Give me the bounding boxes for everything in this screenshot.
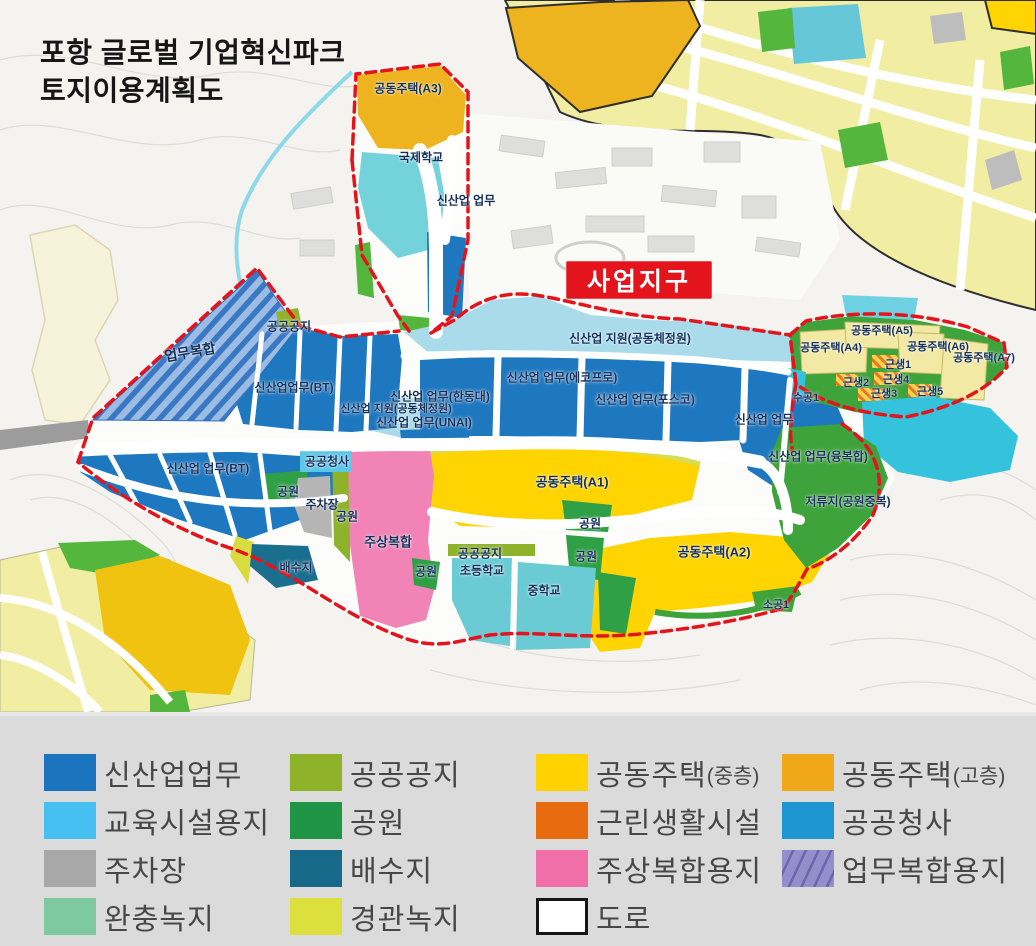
zone-label: 소공1 bbox=[763, 596, 789, 612]
legend-item-civic: 공공청사 bbox=[782, 802, 1008, 839]
legend-item-apartment-high: 공동주택(고층) bbox=[782, 754, 1008, 791]
zone-label: 신산업 업무 bbox=[735, 411, 794, 428]
legend-item-parking: 주차장 bbox=[44, 850, 270, 887]
zone-label: 공공공지 bbox=[458, 545, 502, 562]
zone-label: 공원 bbox=[579, 515, 601, 532]
legend-swatch bbox=[290, 898, 342, 935]
map-title-line1: 포항 글로벌 기업혁신파크 bbox=[40, 34, 345, 72]
zone-label: 국제학교 bbox=[399, 149, 443, 166]
legend-swatch bbox=[536, 802, 588, 839]
legend-swatch bbox=[536, 898, 588, 935]
project-district-badge: 사업지구 bbox=[566, 261, 712, 299]
legend-item-park: 공원 bbox=[290, 802, 461, 839]
zone-label: 배수지 bbox=[279, 559, 312, 576]
legend-item-new-industry: 신산업업무 bbox=[44, 754, 270, 791]
legend-label: 공공공지 bbox=[350, 752, 461, 794]
zone-label: 주상복합 bbox=[364, 532, 412, 551]
legend-column-1: 신산업업무교육시설용지주차장완충녹지 bbox=[44, 754, 270, 935]
zone-label: 공원 bbox=[575, 548, 597, 565]
legend-item-education: 교육시설용지 bbox=[44, 802, 270, 839]
legend-label: 도로 bbox=[596, 896, 651, 938]
legend-label: 공공청사 bbox=[842, 800, 953, 842]
legend-swatch bbox=[782, 802, 834, 839]
zone-label: 신산업 업무(에코프로) bbox=[507, 369, 618, 386]
zone-label: 업무복합 bbox=[163, 338, 217, 367]
legend-column-2: 공공공지공원배수지경관녹지 bbox=[290, 754, 461, 935]
zone-label: 신산업 업무 bbox=[437, 192, 496, 209]
legend-label: 완충녹지 bbox=[104, 896, 215, 938]
legend-item-buffer-green: 완충녹지 bbox=[44, 898, 270, 935]
zone-label: 공동주택(A1) bbox=[535, 472, 608, 491]
legend-item-landscape-green: 경관녹지 bbox=[290, 898, 461, 935]
map-title-line2: 토지이용계획도 bbox=[40, 72, 345, 110]
legend-label: 근린생활시설 bbox=[596, 800, 762, 842]
legend-label: 업무복합용지 bbox=[842, 848, 1008, 890]
legend-swatch bbox=[44, 754, 96, 791]
zone-label: 신산업 업무(포스코) bbox=[595, 391, 695, 408]
zone-label: 공공청사 bbox=[305, 453, 349, 470]
zone-label: 근생3 bbox=[871, 385, 897, 401]
zone-label: 공동주택(A5) bbox=[851, 322, 913, 338]
zone-label: 저류지(공원중복) bbox=[805, 493, 890, 510]
zone-label: 신산업 업무(융복합) bbox=[768, 448, 868, 465]
zone-label: 신산업업무(BT) bbox=[254, 379, 333, 396]
legend-label: 공동주택 bbox=[596, 752, 707, 794]
zone-label: 신산업 지원(공동체정원) bbox=[569, 330, 691, 347]
zone-label: 신산업 업무(BT) bbox=[167, 460, 250, 477]
legend-label: 공원 bbox=[350, 800, 405, 842]
legend-label-suffix: (중층) bbox=[707, 760, 760, 790]
zone-label: 신산업 업무(UNAI) bbox=[376, 414, 472, 431]
legend-label: 경관녹지 bbox=[350, 896, 461, 938]
legend-column-4: 공동주택(고층)공공청사업무복합용지 bbox=[782, 754, 1008, 887]
legend-swatch bbox=[290, 754, 342, 791]
zone-label: 초등학교 bbox=[460, 562, 504, 579]
legend-label: 배수지 bbox=[350, 848, 433, 890]
zone-label: 공원 bbox=[336, 508, 358, 525]
legend-label-suffix: (고층) bbox=[953, 760, 1006, 790]
zone-label: 공동주택(A7) bbox=[953, 349, 1015, 365]
zone-label: 근생2 bbox=[843, 374, 869, 390]
legend-swatch bbox=[290, 802, 342, 839]
zone-label: 근생1 bbox=[885, 356, 911, 372]
map-title: 포항 글로벌 기업혁신파크 토지이용계획도 bbox=[40, 34, 345, 109]
legend-item-business-mix: 업무복합용지 bbox=[782, 850, 1008, 887]
legend-label: 주상복합용지 bbox=[596, 848, 762, 890]
legend-item-mixed-residential: 주상복합용지 bbox=[536, 850, 762, 887]
legend-swatch bbox=[44, 898, 96, 935]
legend-label: 공동주택 bbox=[842, 752, 953, 794]
legend-label: 신산업업무 bbox=[104, 752, 242, 794]
legend-swatch bbox=[290, 850, 342, 887]
zone-label: 공공공지 bbox=[267, 318, 311, 335]
zone-label: 공원 bbox=[277, 483, 299, 500]
legend-panel: 신산업업무교육시설용지주차장완충녹지 공공공지공원배수지경관녹지 공동주택(중층… bbox=[0, 712, 1036, 946]
legend-label: 주차장 bbox=[104, 848, 187, 890]
zone-label: 근생5 bbox=[917, 383, 943, 399]
legend-label: 교육시설용지 bbox=[104, 800, 270, 842]
legend-swatch bbox=[536, 850, 588, 887]
zone-label: 공동주택(A4) bbox=[800, 339, 862, 355]
legend-swatch bbox=[44, 802, 96, 839]
legend-swatch bbox=[782, 850, 834, 887]
zone-label: 공동주택(A3) bbox=[374, 80, 442, 97]
land-use-map: 공동주택(A3)국제학교신산업 업무공공공지업무복합신산업업무(BT)신산업 지… bbox=[0, 0, 1036, 712]
legend-swatch bbox=[536, 754, 588, 791]
legend-item-neighborhood: 근린생활시설 bbox=[536, 802, 762, 839]
zone-label: 수공1 bbox=[793, 389, 819, 405]
zone-label: 공원 bbox=[415, 563, 437, 580]
legend-swatch bbox=[782, 754, 834, 791]
zone-label: 중학교 bbox=[527, 582, 560, 599]
legend-item-road: 도로 bbox=[536, 898, 762, 935]
zone-label: 주차장 bbox=[305, 496, 338, 513]
legend-swatch bbox=[44, 850, 96, 887]
zone-label: 공동주택(A2) bbox=[677, 542, 750, 561]
legend-column-3: 공동주택(중층)근린생활시설주상복합용지도로 bbox=[536, 754, 762, 935]
legend-item-apartment-mid: 공동주택(중층) bbox=[536, 754, 762, 791]
legend-item-public-open: 공공공지 bbox=[290, 754, 461, 791]
legend-item-drainage: 배수지 bbox=[290, 850, 461, 887]
